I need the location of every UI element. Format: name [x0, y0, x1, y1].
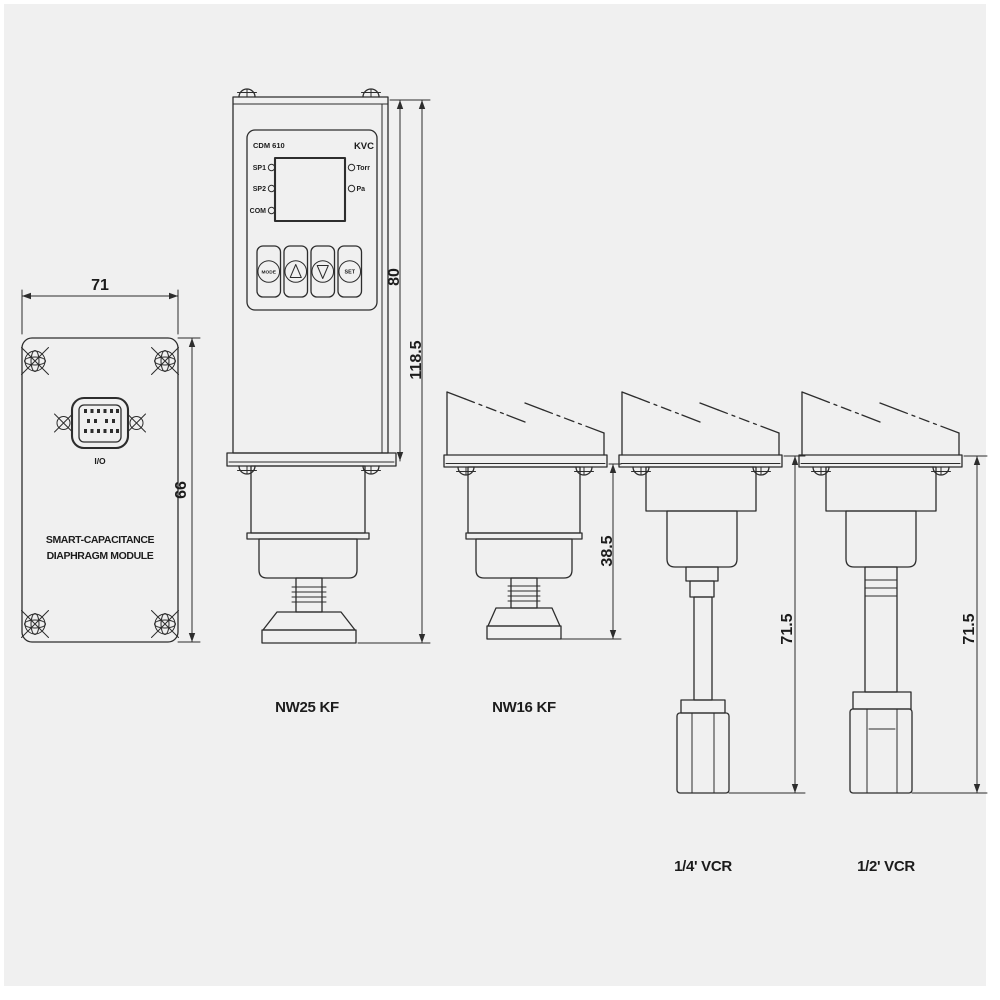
dim-text: 71.5: [961, 613, 978, 644]
connector-label: I/O: [94, 456, 106, 466]
fitting-label-vcr14: 1/4' VCR: [674, 858, 732, 875]
brand-label: KVC: [354, 141, 374, 152]
dim-text: 38.5: [599, 535, 616, 566]
drawing-background: [4, 4, 986, 986]
module-caption-line1: SMART-CAPACITANCE: [46, 534, 155, 546]
led-label-torr: Torr: [357, 165, 371, 172]
led-label-pa: Pa: [357, 186, 366, 193]
jack-screw-icon: [55, 414, 73, 432]
dim-width-text: 71: [91, 277, 109, 294]
jack-screw-icon: [128, 414, 146, 432]
led-label-sp2: SP2: [253, 186, 266, 193]
fitting-label-nw25: NW25 KF: [275, 699, 339, 716]
set-button-label: SET: [345, 270, 356, 276]
dim-total-text: 118.5: [408, 340, 425, 379]
fitting-label-vcr12: 1/2' VCR: [857, 858, 915, 875]
technical-drawing-canvas: I/O SMART-CAPACITANCE DIAPHRAGM MODULE 7…: [0, 0, 1000, 1000]
dim-height-text: 66: [173, 481, 190, 499]
model-label: CDM 610: [253, 141, 285, 150]
led-label-sp1: SP1: [253, 165, 266, 172]
dim-text: 71.5: [779, 613, 796, 644]
dim-body-text: 80: [386, 268, 403, 286]
led-label-com: COM: [250, 208, 267, 215]
fitting-label-nw16: NW16 KF: [492, 699, 556, 716]
mode-button-label: MODE: [262, 270, 277, 276]
module-caption-line2: DIAPHRAGM MODULE: [47, 550, 154, 562]
